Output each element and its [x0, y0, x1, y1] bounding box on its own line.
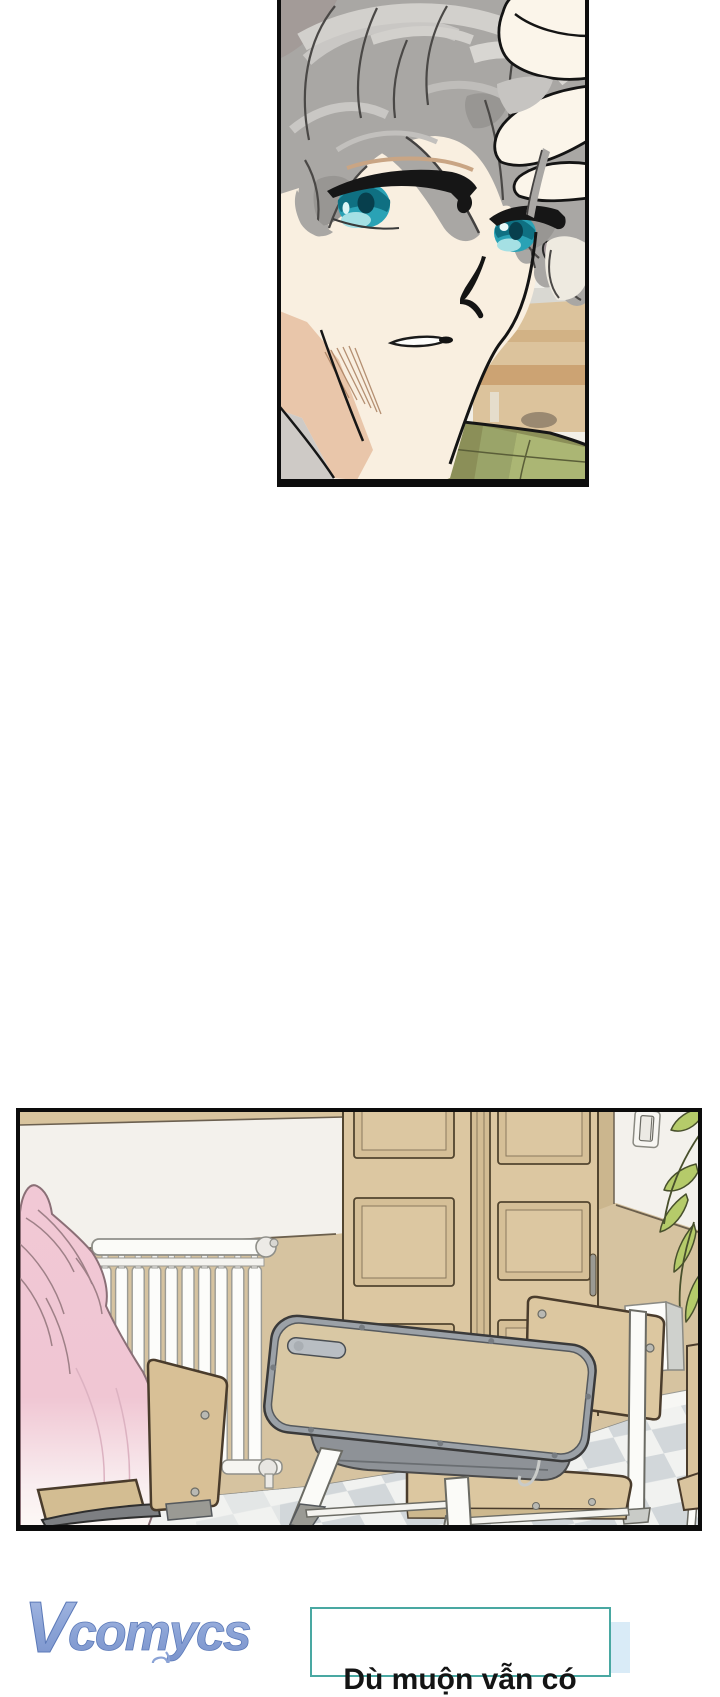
svg-text:comycs: comycs	[68, 1604, 251, 1662]
